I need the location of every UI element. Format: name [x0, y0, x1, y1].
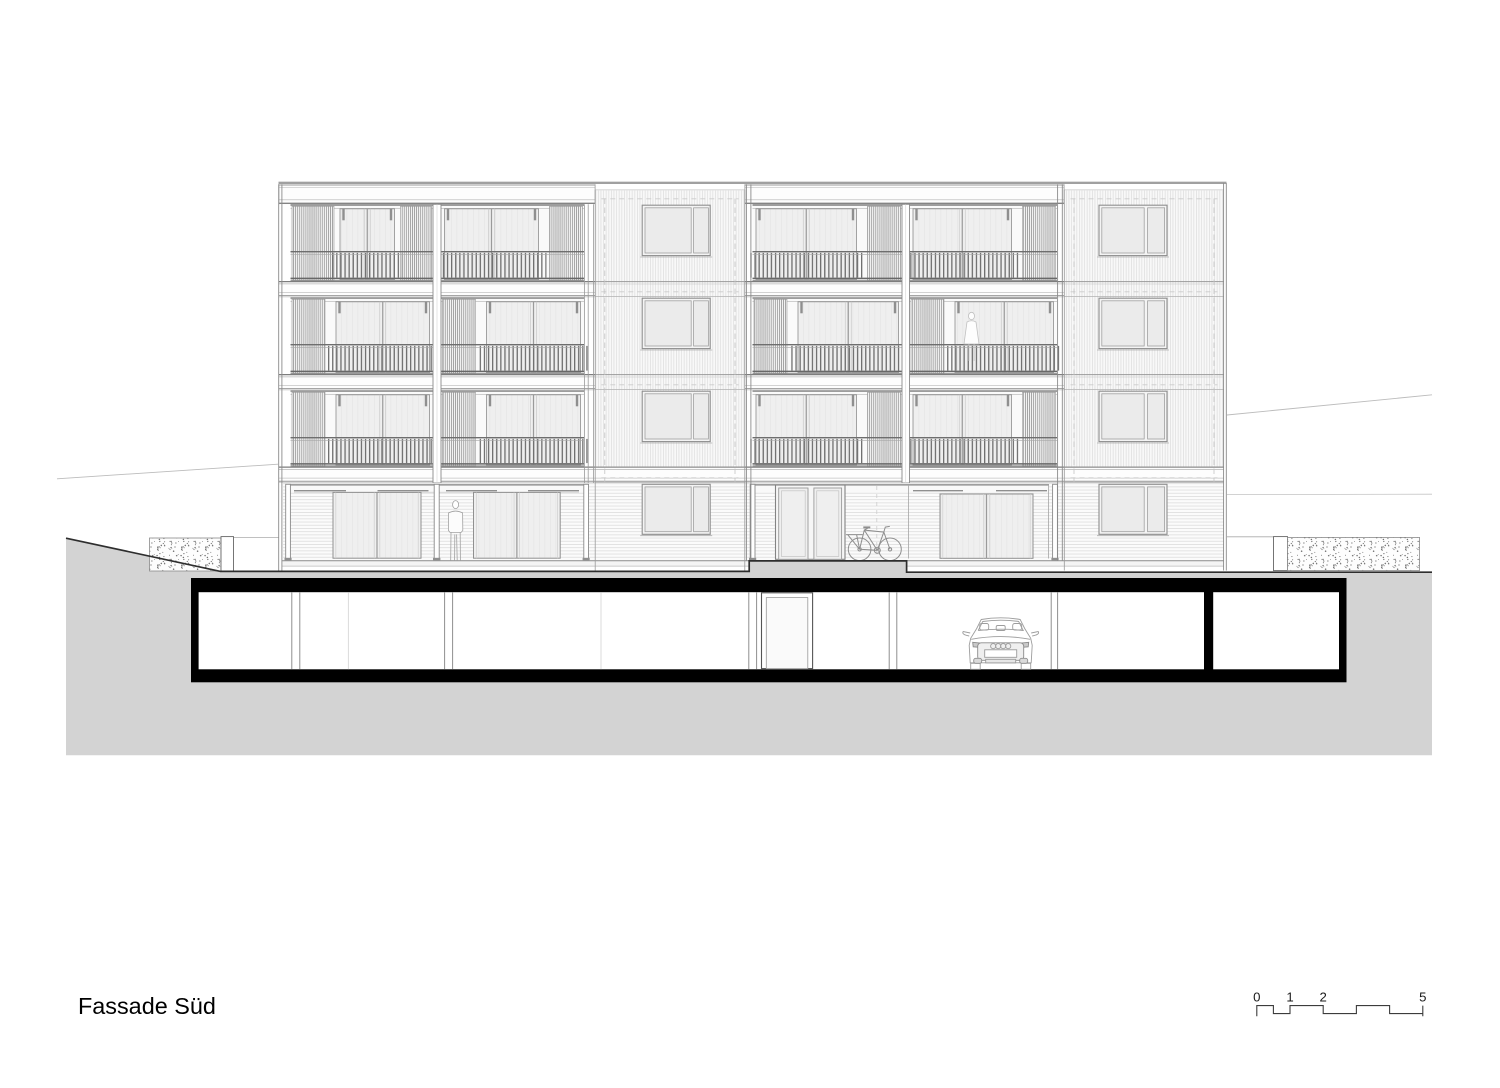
svg-text:5: 5: [1419, 989, 1426, 1004]
svg-text:Fassade Süd: Fassade Süd: [78, 993, 216, 1019]
svg-text:0: 0: [1253, 989, 1260, 1004]
svg-text:2: 2: [1320, 989, 1327, 1004]
svg-text:1: 1: [1286, 989, 1293, 1004]
